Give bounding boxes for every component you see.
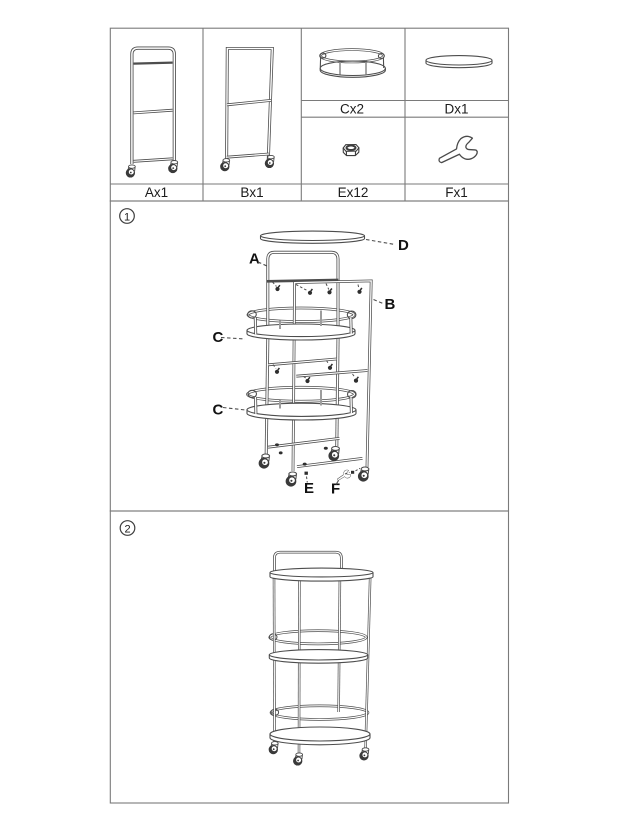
svg-text:F: F <box>331 481 340 498</box>
svg-text:C: C <box>213 402 224 419</box>
svg-text:E: E <box>304 480 314 497</box>
svg-text:1: 1 <box>124 212 130 224</box>
svg-text:D: D <box>398 237 409 254</box>
svg-text:Ax1: Ax1 <box>145 185 168 200</box>
svg-text:B: B <box>385 296 396 313</box>
svg-text:Dx1: Dx1 <box>444 102 468 117</box>
svg-text:Fx1: Fx1 <box>445 185 468 200</box>
svg-text:2: 2 <box>124 524 130 536</box>
svg-text:A: A <box>249 251 260 268</box>
svg-text:Ex12: Ex12 <box>338 185 369 200</box>
svg-text:Bx1: Bx1 <box>240 185 263 200</box>
svg-text:Cx2: Cx2 <box>340 102 364 117</box>
